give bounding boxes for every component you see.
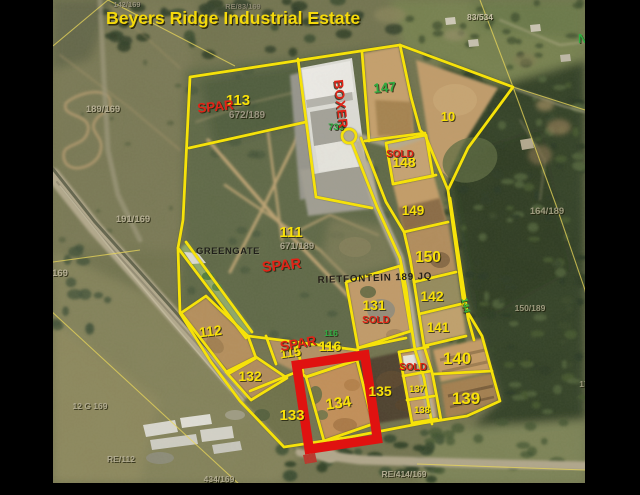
svg-text:671/189: 671/189: [280, 241, 314, 252]
svg-text:83/534: 83/534: [467, 12, 493, 22]
svg-text:169: 169: [52, 268, 68, 279]
svg-text:135: 135: [368, 383, 392, 399]
svg-text:189/169: 189/169: [86, 104, 120, 115]
svg-text:142: 142: [420, 288, 444, 304]
svg-text:10: 10: [441, 109, 455, 124]
svg-text:Beyers Ridge Industrial Estate: Beyers Ridge Industrial Estate: [106, 8, 360, 28]
svg-text:116: 116: [324, 328, 338, 338]
svg-text:191/169: 191/169: [116, 214, 150, 225]
svg-text:164/189: 164/189: [530, 206, 564, 217]
svg-text:139: 139: [452, 389, 480, 408]
svg-text:111: 111: [279, 224, 302, 241]
svg-text:SOLD: SOLD: [399, 362, 427, 373]
svg-text:147: 147: [373, 79, 397, 96]
svg-text:SOLD: SOLD: [362, 315, 390, 326]
svg-text:RE/112: RE/112: [107, 454, 135, 464]
svg-text:132: 132: [238, 368, 262, 384]
svg-text:150/189: 150/189: [515, 303, 546, 313]
svg-text:116: 116: [319, 338, 342, 354]
svg-text:112: 112: [198, 322, 223, 341]
svg-text:138: 138: [414, 405, 430, 416]
svg-text:149: 149: [402, 203, 425, 218]
svg-text:134: 134: [324, 393, 352, 413]
svg-text:150: 150: [415, 249, 441, 266]
svg-text:12 G 169: 12 G 169: [73, 401, 108, 411]
svg-text:GREENGATE: GREENGATE: [196, 246, 260, 257]
svg-text:142/169: 142/169: [113, 0, 140, 9]
svg-text:RE/83/169: RE/83/169: [225, 2, 260, 11]
svg-text:SOLD: SOLD: [386, 149, 414, 160]
svg-text:RE/414/169: RE/414/169: [382, 469, 427, 479]
svg-text:133: 133: [279, 407, 304, 424]
svg-text:140: 140: [443, 349, 471, 368]
svg-text:131: 131: [362, 297, 386, 313]
svg-text:137: 137: [409, 384, 425, 395]
svg-text:434/169: 434/169: [204, 474, 235, 484]
svg-text:141: 141: [427, 320, 450, 335]
